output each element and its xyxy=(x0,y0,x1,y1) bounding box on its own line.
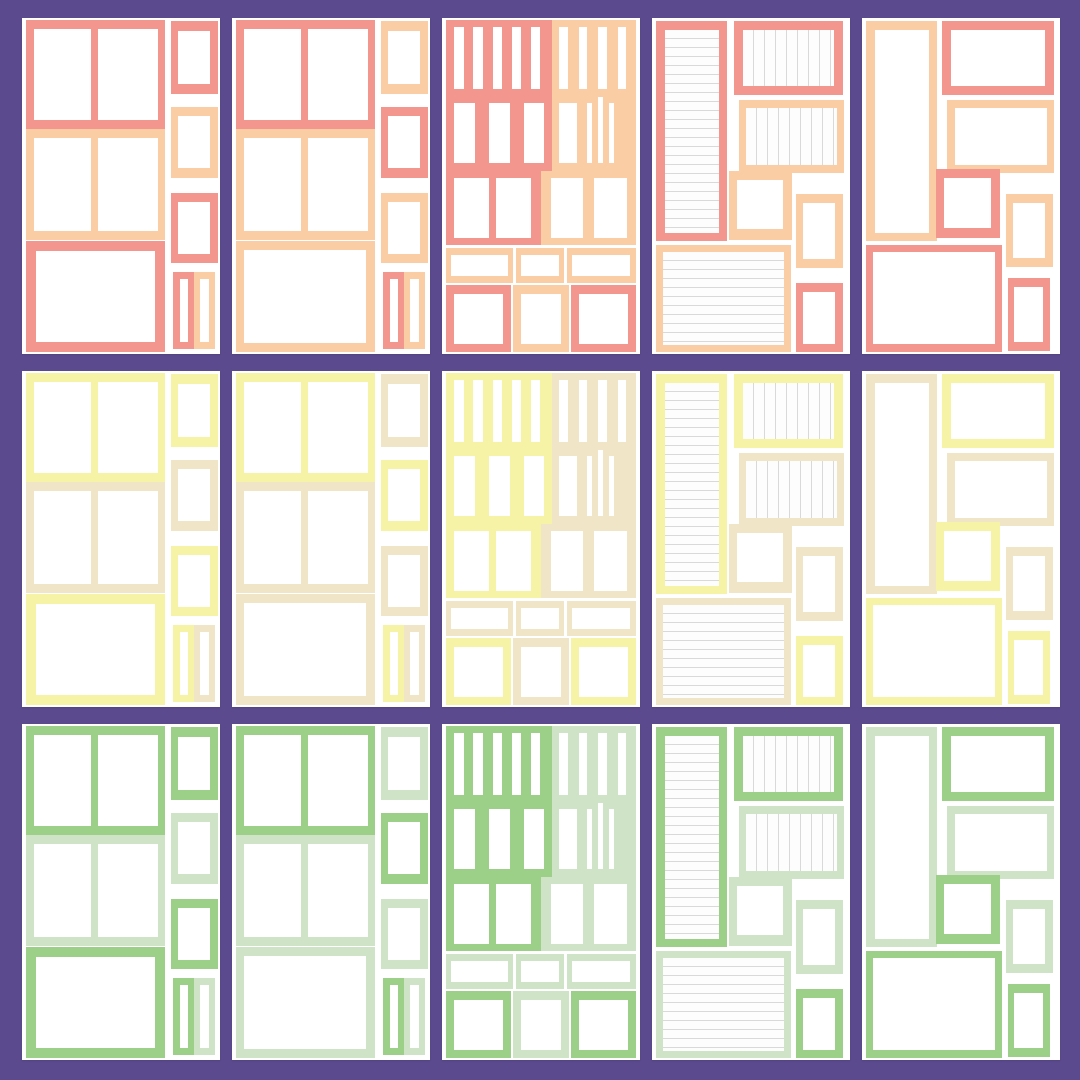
blank-window xyxy=(178,384,210,437)
blank-window xyxy=(598,803,603,870)
photo-block-top xyxy=(26,726,165,835)
side-strip-left xyxy=(383,272,404,349)
side-frame-3 xyxy=(381,546,429,617)
wide-frame-top xyxy=(942,727,1054,801)
slot-block-right xyxy=(552,801,636,877)
blank-window xyxy=(496,531,531,592)
box-block-left xyxy=(446,524,541,598)
blank-window xyxy=(493,380,503,442)
blank-window xyxy=(521,294,561,344)
blank-window xyxy=(493,733,503,795)
blank-window xyxy=(489,456,509,516)
blank-window xyxy=(1013,556,1045,611)
blank-window xyxy=(36,604,155,695)
slot-block-right xyxy=(552,95,636,171)
photo-block-middle xyxy=(26,835,165,946)
blank-window xyxy=(598,27,606,89)
blank-window xyxy=(944,531,991,581)
blank-window xyxy=(388,555,420,607)
blank-window xyxy=(390,279,398,342)
sticker-template-collage xyxy=(0,0,1080,1080)
square-frame-2 xyxy=(513,991,568,1058)
label-strip-2 xyxy=(516,601,564,636)
blank-window xyxy=(598,380,606,442)
blank-window xyxy=(473,380,483,442)
blank-window xyxy=(388,737,420,790)
blank-window xyxy=(451,961,508,982)
side-strip-right xyxy=(194,625,215,702)
photo-frame-large xyxy=(26,947,165,1058)
blank-window xyxy=(737,533,783,583)
label-strip-3 xyxy=(567,601,636,636)
lined-paper-area xyxy=(663,252,784,344)
blank-window xyxy=(803,909,835,965)
template-sheet-green-sticker-slots xyxy=(442,724,640,1060)
blank-window xyxy=(451,255,508,276)
blank-window xyxy=(34,29,91,120)
blank-window xyxy=(803,645,835,697)
photo-block-top xyxy=(26,20,165,129)
photo-frame-large xyxy=(26,594,165,705)
side-strip-right xyxy=(404,625,425,702)
photo-block-middle xyxy=(236,482,375,593)
small-frame-bottom xyxy=(796,989,844,1058)
side-frame-2 xyxy=(171,813,219,884)
blank-window xyxy=(178,31,210,84)
blank-window xyxy=(803,203,835,259)
blank-window xyxy=(496,178,531,239)
blank-window xyxy=(512,733,522,795)
small-frame-bottom xyxy=(1008,631,1051,703)
blank-window xyxy=(178,469,210,521)
blank-window xyxy=(572,961,630,982)
purple-backdrop: { "canvas": { "width": 1080, "height": 1… xyxy=(0,0,1080,1080)
template-sheet-yellow-sticker-slots xyxy=(442,371,640,707)
blank-window xyxy=(955,108,1047,164)
ruled-panel-top xyxy=(734,727,843,801)
side-strip-left xyxy=(383,625,404,702)
slot-block-left xyxy=(446,95,552,171)
blank-window xyxy=(531,27,541,89)
box-block-right xyxy=(541,171,636,245)
blank-window xyxy=(454,733,464,795)
blank-window xyxy=(34,735,91,826)
small-frame-right xyxy=(1006,547,1054,619)
blank-window xyxy=(551,531,583,592)
blank-window xyxy=(559,733,567,795)
blank-window xyxy=(521,961,559,982)
blank-window xyxy=(244,956,366,1049)
blank-window xyxy=(454,884,489,945)
blank-window xyxy=(579,294,627,344)
side-frame-2 xyxy=(381,460,429,531)
square-frame-1 xyxy=(446,638,511,705)
box-block-left xyxy=(446,171,541,245)
blank-window xyxy=(244,29,301,120)
blank-window xyxy=(609,456,614,516)
blank-window xyxy=(521,647,561,697)
small-frame-bottom xyxy=(796,283,844,352)
blank-window xyxy=(180,985,188,1048)
columned-paper-area xyxy=(743,383,834,439)
blank-window xyxy=(598,733,606,795)
square-frame xyxy=(729,524,791,593)
blank-window xyxy=(244,735,301,826)
columned-paper-area xyxy=(746,814,836,870)
photo-block-middle xyxy=(236,835,375,946)
blank-window xyxy=(178,822,210,874)
blank-window xyxy=(579,380,587,442)
lined-paper-area xyxy=(663,958,784,1050)
side-strip-left xyxy=(173,272,194,349)
blank-window xyxy=(579,1000,627,1050)
side-frame-1 xyxy=(171,374,219,446)
blank-window xyxy=(618,733,626,795)
blank-window xyxy=(1014,640,1043,695)
side-strip-left xyxy=(173,625,194,702)
small-frame-bottom xyxy=(1008,984,1051,1056)
blank-window xyxy=(493,27,503,89)
side-strip-right xyxy=(404,978,425,1055)
template-sheet-coral-sticker-slots xyxy=(442,18,640,354)
blank-window xyxy=(388,822,420,874)
blank-window xyxy=(1014,287,1043,342)
blank-window xyxy=(98,382,158,473)
photo-frame-large xyxy=(236,947,375,1058)
blank-window xyxy=(489,103,509,163)
small-frame-bottom xyxy=(796,636,844,705)
blank-window xyxy=(36,251,155,342)
tab-slots-block-right xyxy=(552,373,636,449)
blank-window xyxy=(454,456,474,516)
blank-window xyxy=(308,844,368,937)
blank-window xyxy=(244,138,301,231)
blank-window xyxy=(36,957,155,1048)
blank-window xyxy=(388,116,420,168)
blank-window xyxy=(388,202,420,254)
journal-column-lined xyxy=(656,374,727,594)
blank-window xyxy=(572,608,630,629)
template-sheet-green-photo-grid-alt xyxy=(232,724,430,1060)
blank-window xyxy=(454,647,502,697)
blank-window xyxy=(951,30,1045,86)
wide-frame-middle xyxy=(947,806,1054,878)
blank-window xyxy=(308,29,368,120)
blank-window xyxy=(524,103,544,163)
blank-window xyxy=(200,279,208,342)
tab-slots-block-right xyxy=(552,726,636,802)
slot-block-left xyxy=(446,801,552,877)
side-frame-3 xyxy=(171,193,219,264)
blank-window xyxy=(618,27,626,89)
blank-window xyxy=(244,603,366,696)
small-frame-right xyxy=(1006,194,1054,266)
label-strip-2 xyxy=(516,954,564,989)
blank-window xyxy=(737,180,783,230)
blank-window xyxy=(951,736,1045,792)
blank-window xyxy=(551,884,583,945)
blank-window xyxy=(390,632,398,695)
blank-window xyxy=(473,733,483,795)
blank-window xyxy=(388,31,420,84)
wide-frame-top xyxy=(942,21,1054,95)
blank-window xyxy=(489,809,509,869)
square-frame xyxy=(936,522,999,591)
blank-window xyxy=(587,456,592,516)
template-sheet-coral-photo-grid-alt xyxy=(232,18,430,354)
blank-window xyxy=(454,809,474,869)
tab-slots-block-left xyxy=(446,373,552,449)
small-frame-right xyxy=(796,900,844,974)
side-frame-3 xyxy=(171,899,219,970)
photo-frame-large xyxy=(236,241,375,352)
blank-window xyxy=(410,632,418,695)
blank-window xyxy=(454,103,474,163)
blank-window xyxy=(875,383,929,585)
blank-window xyxy=(200,985,208,1048)
photo-block-top xyxy=(236,373,375,482)
ruled-panel-middle xyxy=(739,100,844,172)
blank-window xyxy=(178,202,210,254)
template-sheet-coral-mixed-frames xyxy=(862,18,1060,354)
square-frame xyxy=(936,169,999,238)
blank-window xyxy=(180,632,188,695)
slot-block-left xyxy=(446,448,552,524)
tall-frame-left xyxy=(866,727,937,947)
template-sheet-yellow-photo-grid-alt xyxy=(232,371,430,707)
square-frame-1 xyxy=(446,991,511,1058)
photo-block-middle xyxy=(236,129,375,240)
tall-frame-left xyxy=(866,374,937,594)
template-sheet-yellow-journal-lined xyxy=(652,371,850,707)
square-frame xyxy=(729,877,791,946)
template-sheet-coral-journal-lined xyxy=(652,18,850,354)
blank-window xyxy=(308,735,368,826)
blank-window xyxy=(308,491,368,584)
square-frame-2 xyxy=(513,285,568,352)
blank-window xyxy=(875,30,929,232)
blank-window xyxy=(598,450,603,517)
template-sheet-green-mixed-frames xyxy=(862,724,1060,1060)
blank-window xyxy=(875,736,929,938)
blank-window xyxy=(98,29,158,120)
square-frame xyxy=(936,875,999,944)
side-frame-2 xyxy=(171,460,219,531)
label-strip-1 xyxy=(446,248,513,283)
side-strip-left xyxy=(173,978,194,1055)
blank-window xyxy=(594,884,626,945)
blank-window xyxy=(609,809,614,869)
blank-window xyxy=(178,908,210,960)
blank-window xyxy=(521,1000,561,1050)
blank-window xyxy=(1014,993,1043,1048)
side-frame-3 xyxy=(171,546,219,617)
blank-window xyxy=(1013,909,1045,964)
blank-window xyxy=(388,384,420,437)
label-strip-3 xyxy=(567,248,636,283)
square-frame-1 xyxy=(446,285,511,352)
blank-window xyxy=(244,491,301,584)
blank-window xyxy=(579,647,627,697)
side-frame-2 xyxy=(381,813,429,884)
side-frame-2 xyxy=(381,107,429,178)
columned-paper-area xyxy=(743,30,834,86)
wide-frame-middle xyxy=(947,453,1054,525)
large-frame-bottom xyxy=(866,951,1002,1059)
blank-window xyxy=(410,279,418,342)
blank-window xyxy=(944,884,991,934)
blank-window xyxy=(521,608,559,629)
blank-window xyxy=(594,531,626,592)
blank-window xyxy=(598,97,603,164)
square-frame-3 xyxy=(571,638,636,705)
label-strip-1 xyxy=(446,601,513,636)
blank-window xyxy=(34,491,91,584)
tab-slots-block-left xyxy=(446,726,552,802)
blank-window xyxy=(454,27,464,89)
ruled-panel-middle xyxy=(739,806,844,878)
square-frame-2 xyxy=(513,638,568,705)
blank-window xyxy=(34,138,91,231)
template-sheet-coral-photo-grid xyxy=(22,18,220,354)
template-sheet-green-photo-grid xyxy=(22,724,220,1060)
blank-window xyxy=(559,456,578,516)
blank-window xyxy=(454,531,489,592)
side-strip-right xyxy=(404,272,425,349)
journal-column-lined xyxy=(656,727,727,947)
blank-window xyxy=(873,958,995,1049)
lined-paper-area xyxy=(665,30,719,232)
blank-window xyxy=(244,844,301,937)
blank-window xyxy=(531,380,541,442)
photo-block-middle xyxy=(26,482,165,593)
side-strip-right xyxy=(194,978,215,1055)
blank-window xyxy=(1013,203,1045,258)
tab-slots-block-right xyxy=(552,20,636,96)
label-strip-1 xyxy=(446,954,513,989)
slot-block-right xyxy=(552,448,636,524)
blank-window xyxy=(244,250,366,343)
wide-frame-top xyxy=(942,374,1054,448)
photo-frame-large xyxy=(236,594,375,705)
blank-window xyxy=(572,255,630,276)
blank-window xyxy=(178,737,210,790)
note-panel-lined xyxy=(656,245,791,353)
blank-window xyxy=(496,884,531,945)
blank-window xyxy=(587,809,592,869)
side-frame-3 xyxy=(381,899,429,970)
blank-window xyxy=(594,178,626,239)
blank-window xyxy=(34,844,91,937)
label-strip-3 xyxy=(567,954,636,989)
blank-window xyxy=(98,138,158,231)
blank-window xyxy=(618,380,626,442)
blank-window xyxy=(579,733,587,795)
photo-frame-large xyxy=(26,241,165,352)
blank-window xyxy=(551,178,583,239)
columned-paper-area xyxy=(743,736,834,792)
side-frame-3 xyxy=(381,193,429,264)
side-frame-1 xyxy=(381,21,429,93)
ruled-panel-top xyxy=(734,374,843,448)
photo-block-top xyxy=(236,726,375,835)
template-sheet-yellow-mixed-frames xyxy=(862,371,1060,707)
small-frame-right xyxy=(1006,900,1054,972)
side-frame-1 xyxy=(381,727,429,799)
blank-window xyxy=(410,985,418,1048)
small-frame-right xyxy=(796,547,844,621)
blank-window xyxy=(955,814,1047,870)
lined-paper-area xyxy=(665,383,719,585)
side-strip-left xyxy=(383,978,404,1055)
blank-window xyxy=(178,116,210,168)
side-frame-1 xyxy=(381,374,429,446)
blank-window xyxy=(178,555,210,607)
lined-paper-area xyxy=(665,736,719,938)
blank-window xyxy=(587,103,592,163)
blank-window xyxy=(390,985,398,1048)
side-frame-1 xyxy=(171,727,219,799)
blank-window xyxy=(308,138,368,231)
blank-window xyxy=(803,556,835,612)
blank-window xyxy=(955,461,1047,517)
blank-window xyxy=(559,27,567,89)
blank-window xyxy=(388,908,420,960)
blank-window xyxy=(473,27,483,89)
blank-window xyxy=(873,252,995,343)
blank-window xyxy=(609,103,614,163)
blank-window xyxy=(579,27,587,89)
side-strip-right xyxy=(194,272,215,349)
tab-slots-block-left xyxy=(446,20,552,96)
blank-window xyxy=(180,279,188,342)
box-block-right xyxy=(541,524,636,598)
square-frame-3 xyxy=(571,991,636,1058)
blank-window xyxy=(512,27,522,89)
ruled-panel-middle xyxy=(739,453,844,525)
blank-window xyxy=(454,294,502,344)
blank-window xyxy=(873,605,995,696)
blank-window xyxy=(944,178,991,228)
template-sheet-green-journal-lined xyxy=(652,724,850,1060)
small-frame-right xyxy=(796,194,844,268)
columned-paper-area xyxy=(746,108,836,164)
blank-window xyxy=(98,844,158,937)
tall-frame-left xyxy=(866,21,937,241)
lined-paper-area xyxy=(663,605,784,697)
blank-window xyxy=(388,469,420,521)
label-strip-2 xyxy=(516,248,564,283)
blank-window xyxy=(98,491,158,584)
blank-window xyxy=(200,632,208,695)
box-block-right xyxy=(541,877,636,951)
side-frame-1 xyxy=(171,21,219,93)
blank-window xyxy=(454,380,464,442)
blank-window xyxy=(521,255,559,276)
square-frame xyxy=(729,171,791,240)
blank-window xyxy=(524,809,544,869)
large-frame-bottom xyxy=(866,598,1002,706)
photo-block-top xyxy=(236,20,375,129)
blank-window xyxy=(803,998,835,1050)
photo-block-top xyxy=(26,373,165,482)
blank-window xyxy=(98,735,158,826)
blank-window xyxy=(951,383,1045,439)
journal-column-lined xyxy=(656,21,727,241)
blank-window xyxy=(559,380,567,442)
blank-window xyxy=(803,292,835,344)
blank-window xyxy=(244,382,301,473)
